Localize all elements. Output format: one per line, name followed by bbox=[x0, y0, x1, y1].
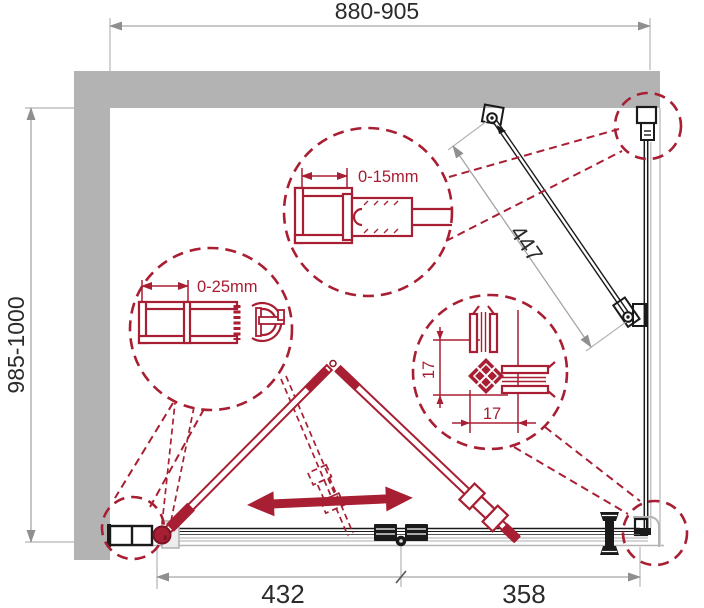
wall-mount-bracket-top bbox=[637, 107, 656, 140]
detail-circle-bottom-corner bbox=[623, 501, 687, 565]
wall-profile-top-label: 0-15mm bbox=[358, 168, 419, 186]
door-section-width-label: 432 bbox=[261, 579, 304, 608]
detail-wall-profile-left: 0-25mm bbox=[139, 278, 284, 343]
folding-door bbox=[154, 360, 525, 547]
walls bbox=[74, 71, 660, 560]
wall-mount-profile bbox=[107, 524, 152, 547]
support-bar-length-label: 447 bbox=[505, 220, 548, 266]
corner-profile-vertical-label: 17 bbox=[420, 361, 438, 379]
shower-enclosure-plan-drawing: 880-905 985-1000 432 358 bbox=[0, 0, 704, 608]
apex-hinge bbox=[330, 361, 336, 367]
detail-circle-wall-profile-left bbox=[130, 248, 292, 410]
overall-depth-label: 985-1000 bbox=[3, 296, 29, 393]
dim-bottom-sections: 432 358 bbox=[157, 546, 640, 608]
fixed-section-width-label: 358 bbox=[502, 579, 545, 608]
detail-corner-profile: 17 17 bbox=[420, 306, 555, 433]
panel-knob bbox=[600, 512, 619, 555]
center-guide-clamps bbox=[374, 524, 428, 546]
wall-profile-left-label: 0-25mm bbox=[197, 278, 258, 296]
detail-wall-profile-top: 0-15mm bbox=[295, 168, 452, 243]
overall-width-label: 880-905 bbox=[335, 0, 419, 24]
wall-left bbox=[74, 71, 110, 560]
corner-profile-horizontal-label: 17 bbox=[483, 405, 501, 423]
door-handle bbox=[459, 484, 507, 532]
folding-door-left-panel bbox=[163, 364, 333, 535]
bottom-track bbox=[107, 512, 648, 555]
slide-direction-arrow bbox=[246, 485, 413, 517]
detail-leaders bbox=[115, 129, 640, 514]
folding-door-right-panel bbox=[330, 360, 525, 547]
wall-top bbox=[74, 71, 660, 108]
corner-block bbox=[468, 358, 504, 394]
